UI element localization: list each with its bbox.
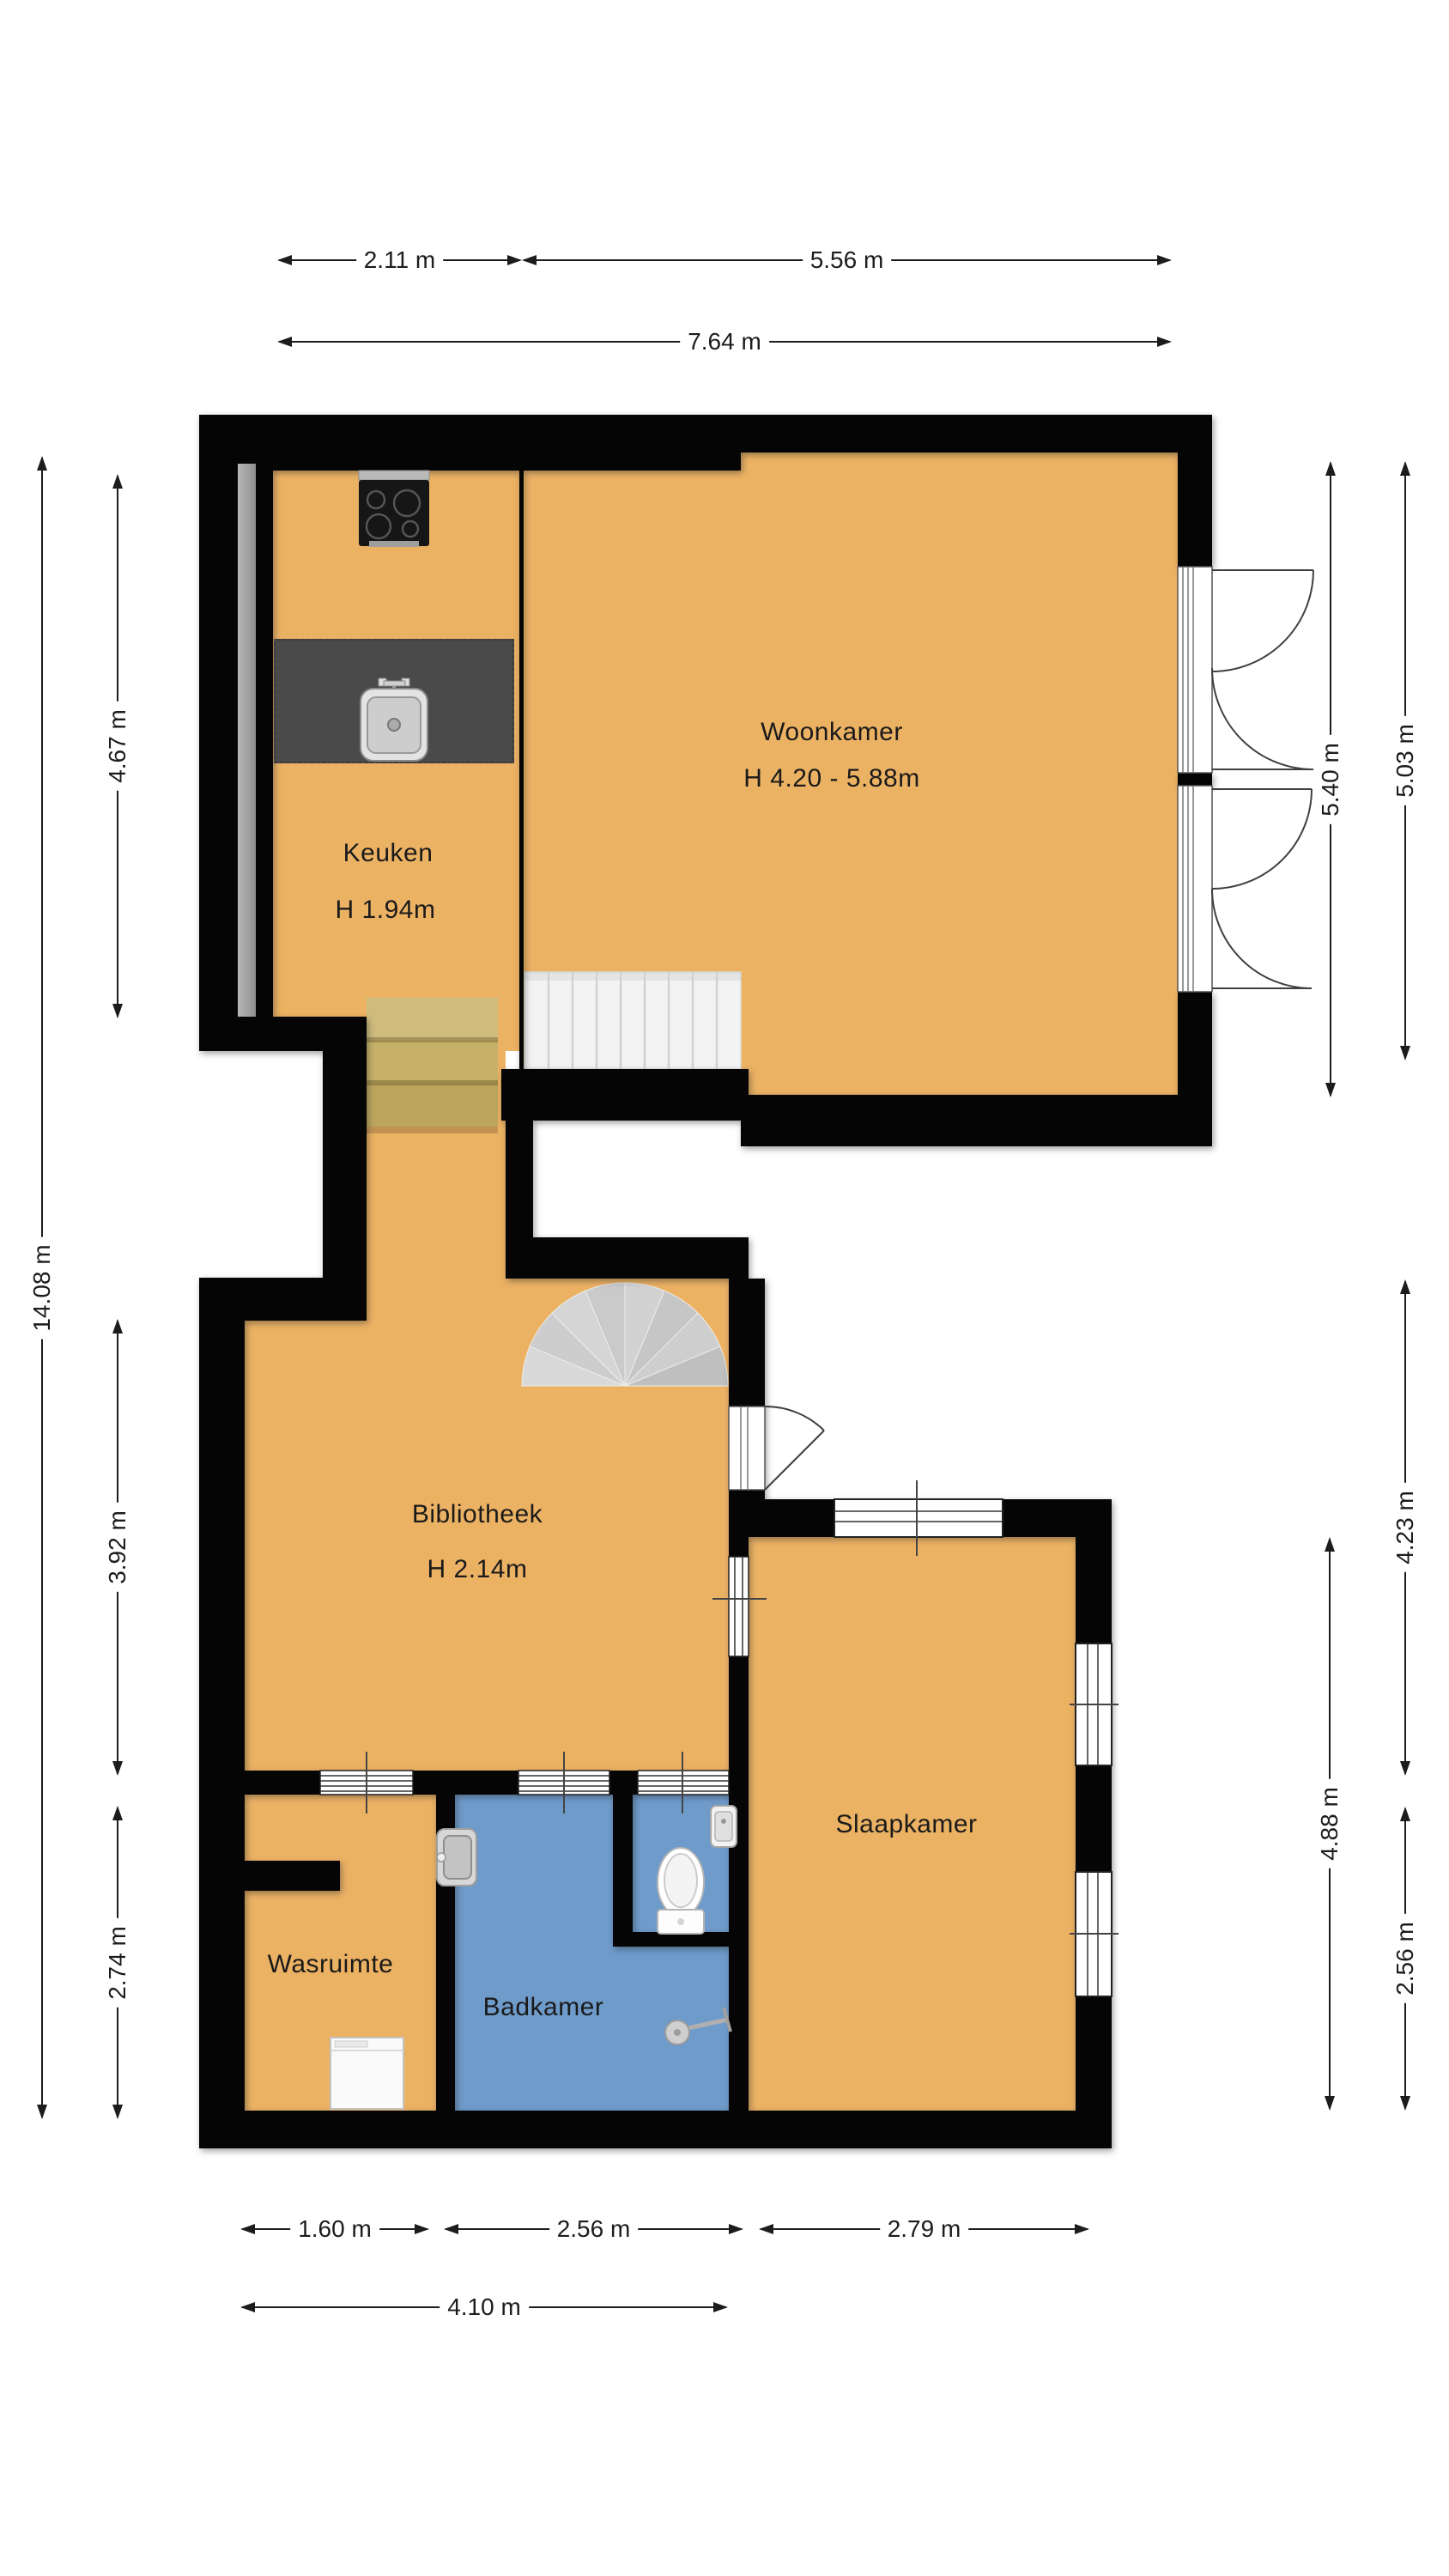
woonkamer-height: H 4.20 - 5.88m	[743, 764, 919, 793]
floorplan-drawing	[0, 0, 1449, 2576]
wood-steps-icon	[367, 998, 498, 1133]
bibliotheek-floor	[245, 1321, 731, 1771]
keuken-woonkamer-divider	[519, 471, 524, 1069]
keuken-height: H 1.94m	[336, 896, 436, 925]
french-doors-upper	[1178, 567, 1313, 773]
slaapkamer-right-window-2	[1070, 1872, 1119, 1996]
french-doors-lower	[1178, 786, 1312, 992]
badkamer-label: Badkamer	[483, 1993, 604, 2022]
bathroom-sink-icon	[437, 1829, 476, 1886]
slaapkamer-label: Slaapkamer	[835, 1810, 977, 1839]
slaapkamer-right-window-1	[1070, 1643, 1119, 1765]
hand-basin-icon	[711, 1806, 737, 1847]
left-wall-inset	[238, 464, 256, 1017]
kitchen-sink-icon	[361, 678, 427, 761]
stove-icon	[359, 471, 429, 547]
washing-machine-icon	[330, 2038, 403, 2109]
keuken-label: Keuken	[343, 839, 433, 868]
floorplan-page: Woonkamer H 4.20 - 5.88m Keuken H 1.94m …	[0, 0, 1449, 2576]
badkamer-floor	[455, 1795, 729, 2111]
bibliotheek-height: H 2.14m	[427, 1555, 528, 1584]
wasruimte-label: Wasruimte	[268, 1950, 394, 1979]
toilet-icon	[658, 1848, 704, 1934]
bibliotheek-door	[729, 1406, 824, 1490]
straight-stairs-icon	[524, 972, 741, 1069]
bibliotheek-label: Bibliotheek	[412, 1500, 543, 1529]
woonkamer-label: Woonkamer	[761, 718, 903, 747]
